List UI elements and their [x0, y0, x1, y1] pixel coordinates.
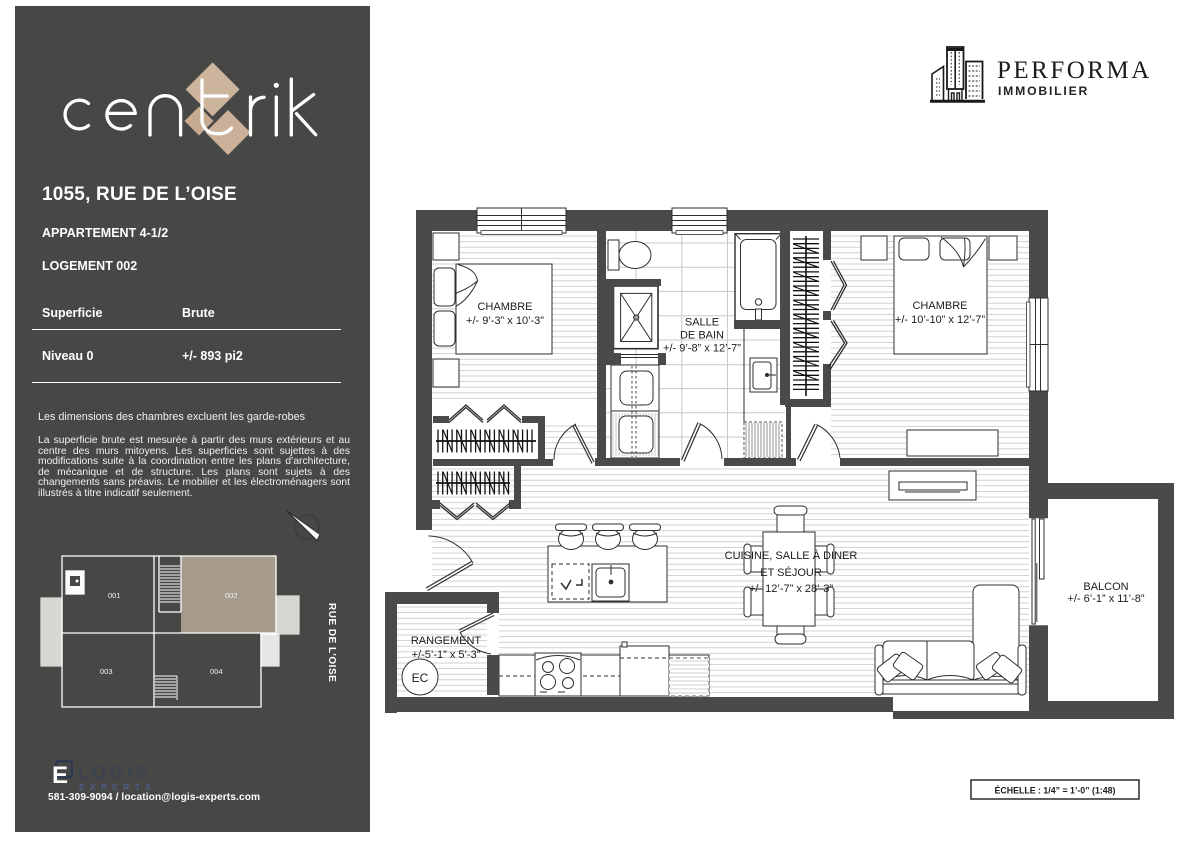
- svg-text:ÉCHELLE : 1/4” = 1’-0” (1:48): ÉCHELLE : 1/4” = 1’-0” (1:48): [995, 786, 1116, 796]
- svg-text:+/- 10’-10” x 12’-7”: +/- 10’-10” x 12’-7”: [895, 314, 986, 326]
- svg-text:+/- 9’-3” x 10’-3”: +/- 9’-3” x 10’-3”: [466, 315, 544, 327]
- svg-text:+/- 6’-1” x 11’-8”: +/- 6’-1” x 11’-8”: [1067, 593, 1144, 605]
- svg-text:001: 001: [108, 591, 121, 600]
- svg-text:003: 003: [100, 667, 113, 676]
- svg-text:PERFORMA: PERFORMA: [997, 57, 1152, 84]
- svg-text:LOGIS: LOGIS: [78, 763, 151, 783]
- svg-text:+/- 12’-7” x 28’-3”: +/- 12’-7” x 28’-3”: [749, 583, 833, 595]
- svg-text:ET SÉJOUR: ET SÉJOUR: [760, 566, 822, 579]
- svg-text:DE BAIN: DE BAIN: [680, 330, 724, 342]
- svg-text:E: E: [52, 762, 68, 789]
- svg-text:IMMOBILIER: IMMOBILIER: [998, 84, 1089, 98]
- svg-text:+/- 9’-8” x 12’-7”: +/- 9’-8” x 12’-7”: [663, 343, 741, 355]
- svg-text:CHAMBRE: CHAMBRE: [477, 301, 532, 313]
- svg-text:EC: EC: [412, 671, 429, 685]
- svg-text:SALLE: SALLE: [685, 317, 719, 329]
- svg-text:002: 002: [225, 591, 238, 600]
- svg-text:BALCON: BALCON: [1083, 581, 1128, 593]
- svg-text:EXPERTS: EXPERTS: [79, 782, 156, 792]
- svg-text:CUISINE, SALLE À DINER: CUISINE, SALLE À DINER: [725, 549, 858, 562]
- svg-text:004: 004: [210, 667, 223, 676]
- svg-text:RANGEMENT: RANGEMENT: [411, 635, 482, 647]
- svg-text:CHAMBRE: CHAMBRE: [912, 300, 967, 312]
